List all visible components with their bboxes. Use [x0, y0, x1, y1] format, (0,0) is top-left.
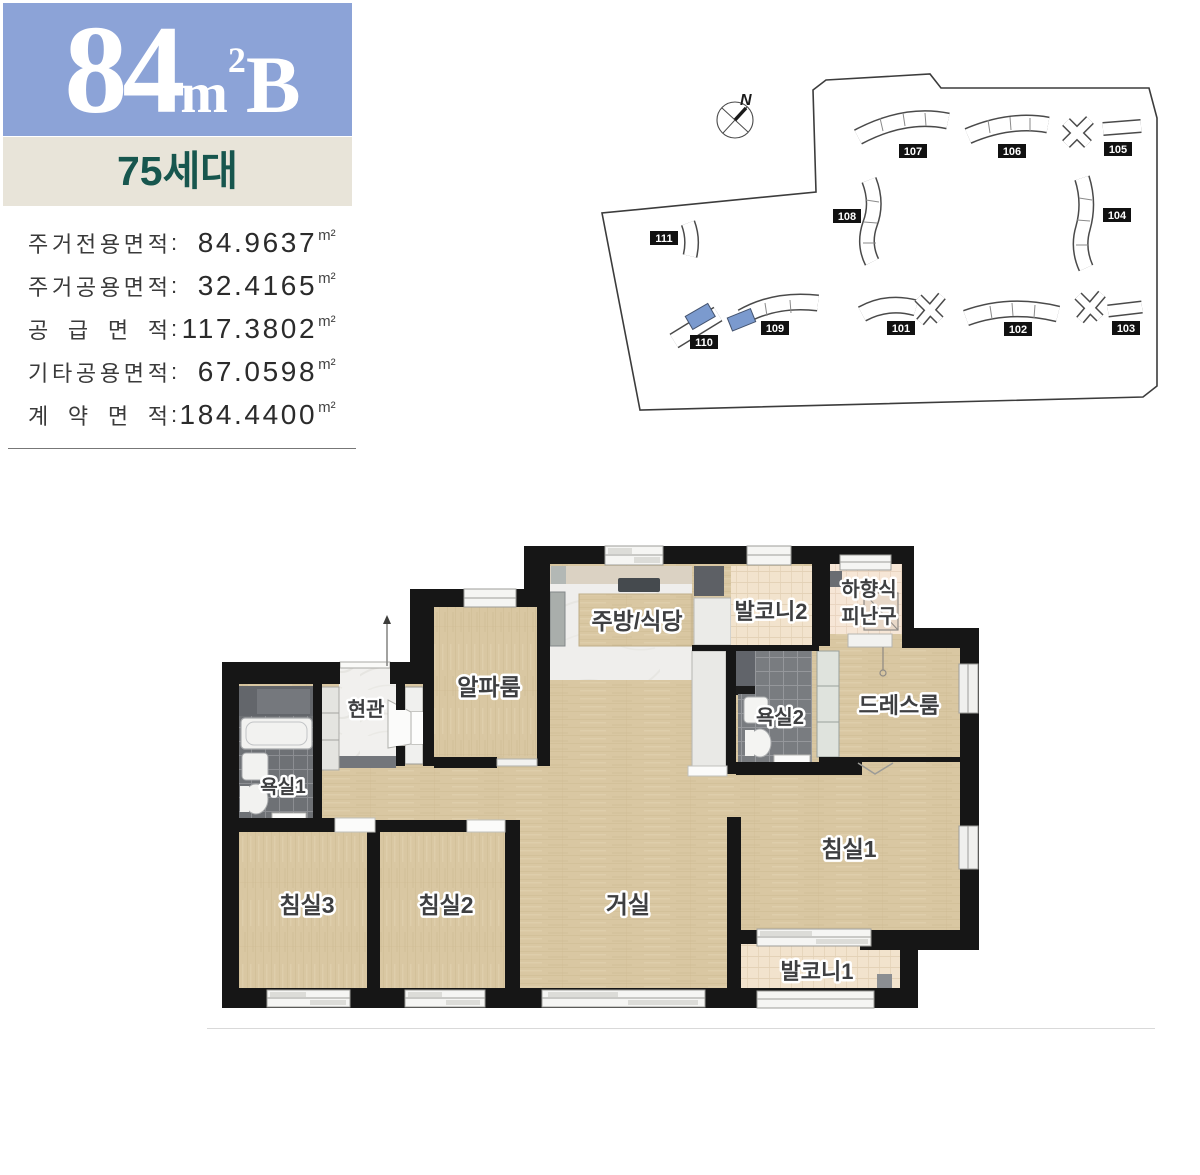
svg-text:주방/식당: 주방/식당 — [591, 608, 682, 634]
svg-text:알파룸: 알파룸 — [457, 674, 520, 700]
svg-text:피난구: 피난구 — [841, 605, 896, 628]
svg-text:하향식: 하향식 — [841, 578, 896, 601]
svg-text:욕실2: 욕실2 — [756, 706, 804, 729]
svg-text:거실: 거실 — [606, 892, 650, 919]
svg-text:현관: 현관 — [348, 698, 385, 721]
svg-text:침실3: 침실3 — [279, 892, 334, 918]
svg-text:욕실1: 욕실1 — [260, 776, 306, 798]
svg-text:드레스룸: 드레스룸 — [859, 693, 940, 718]
svg-text:침실1: 침실1 — [821, 836, 876, 862]
svg-text:발코니1: 발코니1 — [781, 959, 854, 984]
svg-text:발코니2: 발코니2 — [735, 599, 808, 624]
svg-text:침실2: 침실2 — [418, 892, 473, 918]
